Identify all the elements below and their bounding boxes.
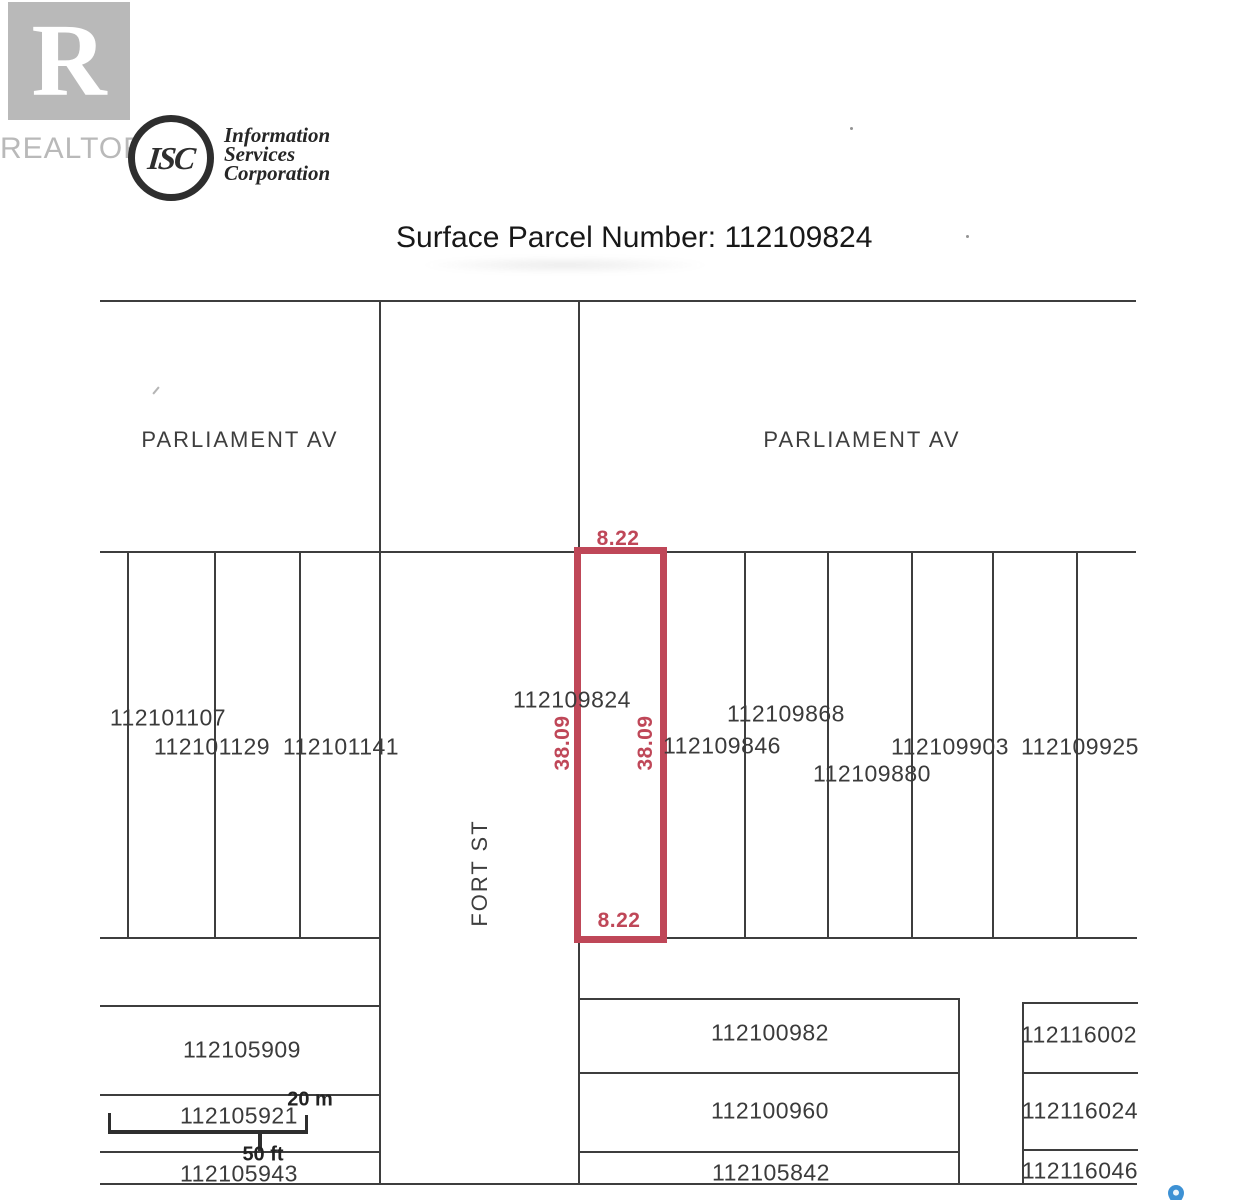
parcel-number-label: 112116024: [1022, 1098, 1138, 1125]
scale-bar-tick: [305, 1115, 308, 1134]
parcel-number-label: 112109824: [513, 687, 631, 714]
isc-name-line3: Corporation: [224, 164, 330, 183]
boundary-line: [100, 300, 1136, 302]
scale-bar-line: [108, 1130, 308, 1134]
boundary-line: [827, 551, 829, 938]
dimension-label: 8.22: [598, 909, 641, 933]
scale-imperial-label: 50 ft: [242, 1144, 283, 1167]
boundary-line: [127, 551, 129, 938]
parcel-number-label: 112101107: [110, 705, 226, 732]
parcel-number-label: 112105842: [712, 1160, 830, 1187]
boundary-line: [100, 937, 379, 939]
dimension-label: 8.22: [597, 527, 640, 551]
boundary-line: [660, 937, 1137, 939]
parcel-number-label: 112109880: [813, 761, 931, 788]
isc-company-name: Information Services Corporation: [224, 126, 330, 183]
boundary-line: [1022, 1149, 1138, 1151]
parcel-number-label: 112109903: [891, 734, 1009, 761]
parcel-number-label: 112100982: [711, 1020, 829, 1047]
parcel-map-page: R REALTOR ISC Information Services Corpo…: [0, 0, 1240, 1200]
boundary-line: [100, 1151, 379, 1153]
parcel-number-label: 112116046: [1022, 1158, 1138, 1185]
boundary-line: [100, 1094, 379, 1096]
parcel-number-label: 112109868: [727, 701, 845, 728]
boundary-line: [958, 998, 960, 1184]
boundary-line: [1022, 1072, 1138, 1074]
boundary-line: [100, 1005, 379, 1007]
street-name-label: PARLIAMENT AV: [763, 427, 960, 453]
dimension-label: 38.09: [551, 715, 575, 770]
parcel-number-label: 112109846: [663, 733, 781, 760]
map-pin-icon: [1167, 1184, 1185, 1200]
street-name-label: PARLIAMENT AV: [141, 427, 338, 453]
parcel-number-label: 112109925: [1021, 734, 1139, 761]
boundary-line: [578, 1151, 959, 1153]
street-name-label: FORT ST: [467, 819, 493, 926]
isc-logo-circle: ISC: [128, 115, 214, 201]
boundary-line: [578, 1072, 959, 1074]
dimension-label: 38.09: [634, 715, 658, 770]
scale-bar-tick: [108, 1113, 111, 1134]
parcel-number-label: 112100960: [711, 1098, 829, 1125]
scale-metric-label: 20 m: [287, 1089, 333, 1112]
parcel-number-label: 112116002: [1021, 1022, 1137, 1049]
parcel-number-label: 112105921: [180, 1103, 298, 1130]
boundary-line: [1022, 1002, 1138, 1004]
isc-monogram-icon: ISC: [146, 140, 195, 177]
parcel-number-label: 112101141: [283, 734, 399, 761]
parcel-number-label: 112105909: [183, 1037, 301, 1064]
parcel-number-label: 112101129: [154, 734, 270, 761]
boundary-line: [578, 998, 959, 1000]
